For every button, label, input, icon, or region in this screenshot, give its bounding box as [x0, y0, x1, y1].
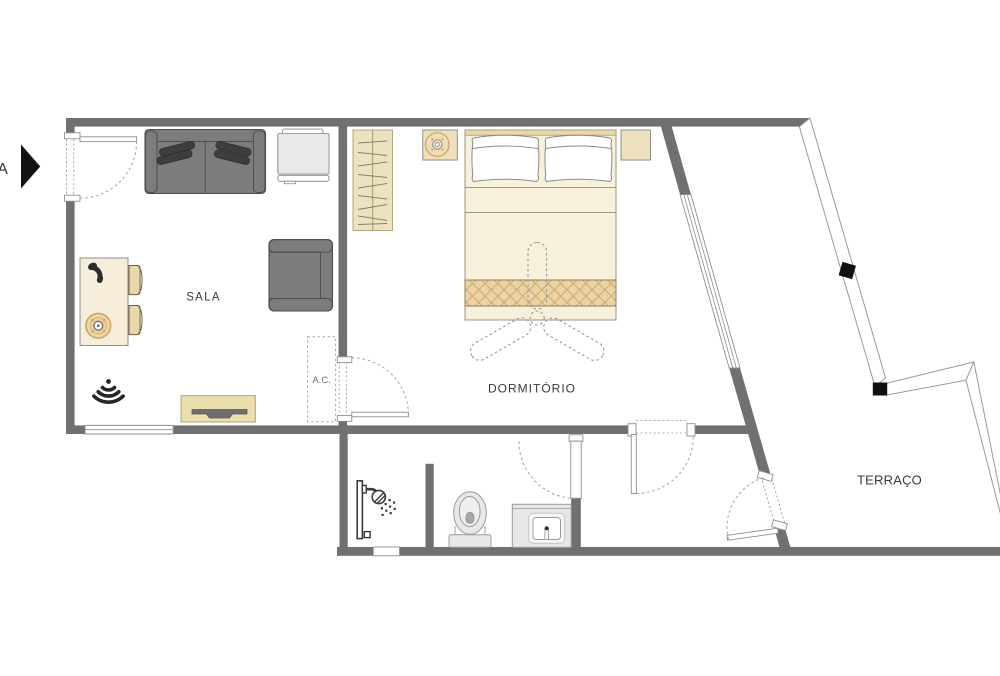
svg-text:SALA: SALA	[186, 291, 221, 303]
svg-text:A.C.: A.C.	[312, 375, 330, 386]
svg-text:A: A	[0, 161, 9, 178]
svg-text:DORMITÓRIO: DORMITÓRIO	[488, 381, 576, 396]
svg-text:TERRAÇO: TERRAÇO	[857, 473, 922, 488]
